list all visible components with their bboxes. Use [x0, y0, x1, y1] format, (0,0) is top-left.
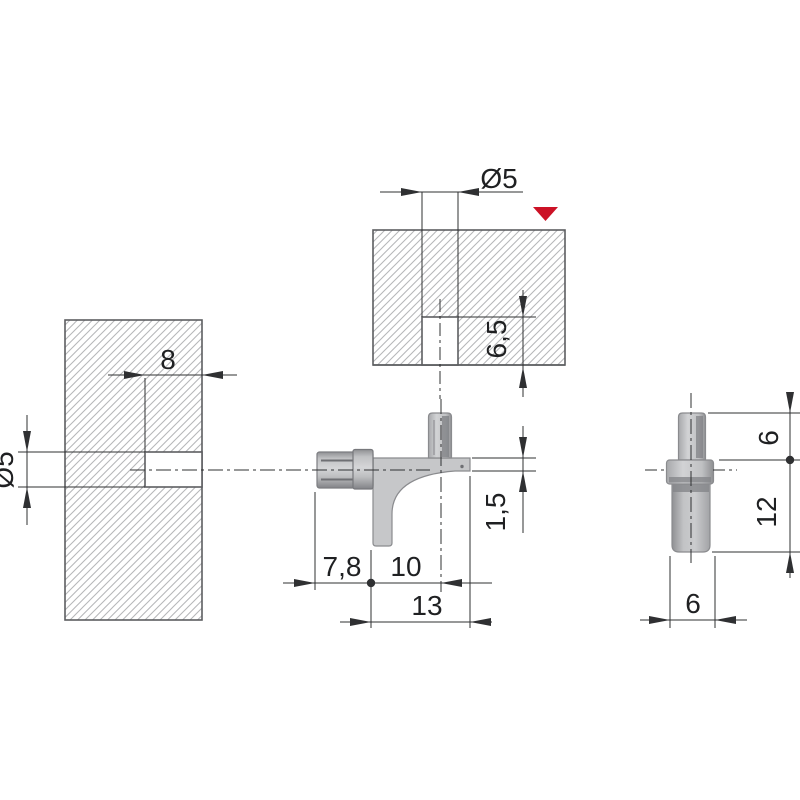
arrowhead — [786, 552, 794, 573]
pin-bracket-body — [373, 458, 470, 546]
dimension-dot — [367, 579, 375, 587]
shelf-pin-drawing: Ø5 6,5 8 Ø5 — [0, 0, 800, 800]
dimension-width: 6 — [640, 556, 747, 628]
dim-label-pin-length: 7,8 — [323, 551, 362, 582]
hatched-panel-top — [373, 230, 565, 365]
collar-shadow-band — [669, 477, 711, 483]
dimension-upper-height: 6 — [708, 392, 800, 464]
pin-collar — [353, 450, 373, 490]
dim-label-support-length: 10 — [390, 551, 421, 582]
arrowhead — [350, 618, 371, 626]
arrowhead — [786, 392, 794, 413]
dim-label-hole-diameter-top: Ø5 — [480, 163, 517, 194]
arrowhead — [519, 437, 527, 458]
arrowhead — [519, 471, 527, 492]
post-shading — [442, 416, 449, 457]
technical-drawing-page: Ø5 6,5 8 Ø5 — [0, 0, 800, 800]
pin-front-view: 6 12 6 — [640, 392, 800, 628]
arrowhead — [458, 188, 479, 196]
arrowhead — [519, 367, 527, 388]
dim-label-hole-depth-left: 8 — [160, 344, 176, 375]
top-panel-section-view: Ø5 6,5 — [373, 163, 565, 399]
dim-label-lower-height: 12 — [751, 496, 782, 527]
arrowhead — [470, 618, 491, 626]
arrowhead — [401, 188, 422, 196]
ejector-mark-dot — [460, 465, 463, 468]
dim-label-width: 6 — [685, 588, 701, 619]
arrowhead — [294, 579, 315, 587]
dimension-hole-diameter-top: Ø5 — [380, 163, 523, 196]
arrowhead — [23, 431, 31, 452]
dim-label-overall-length: 13 — [411, 590, 442, 621]
dimension-lower-height: 12 — [712, 460, 800, 578]
dimension-arm-thickness: 1,5 — [472, 426, 536, 533]
arrowhead — [715, 616, 736, 624]
red-triangle-marker — [533, 207, 558, 221]
dim-label-arm-thickness: 1,5 — [480, 493, 511, 532]
dim-label-upper-height: 6 — [753, 430, 784, 446]
arrowhead — [23, 487, 31, 508]
post-shading — [696, 416, 703, 458]
dim-label-hole-diameter-left: Ø5 — [0, 451, 19, 488]
arrowhead — [441, 579, 462, 587]
arrowhead — [649, 616, 670, 624]
dim-label-hole-depth-top: 6,5 — [481, 320, 512, 359]
arrowhead — [202, 371, 223, 379]
